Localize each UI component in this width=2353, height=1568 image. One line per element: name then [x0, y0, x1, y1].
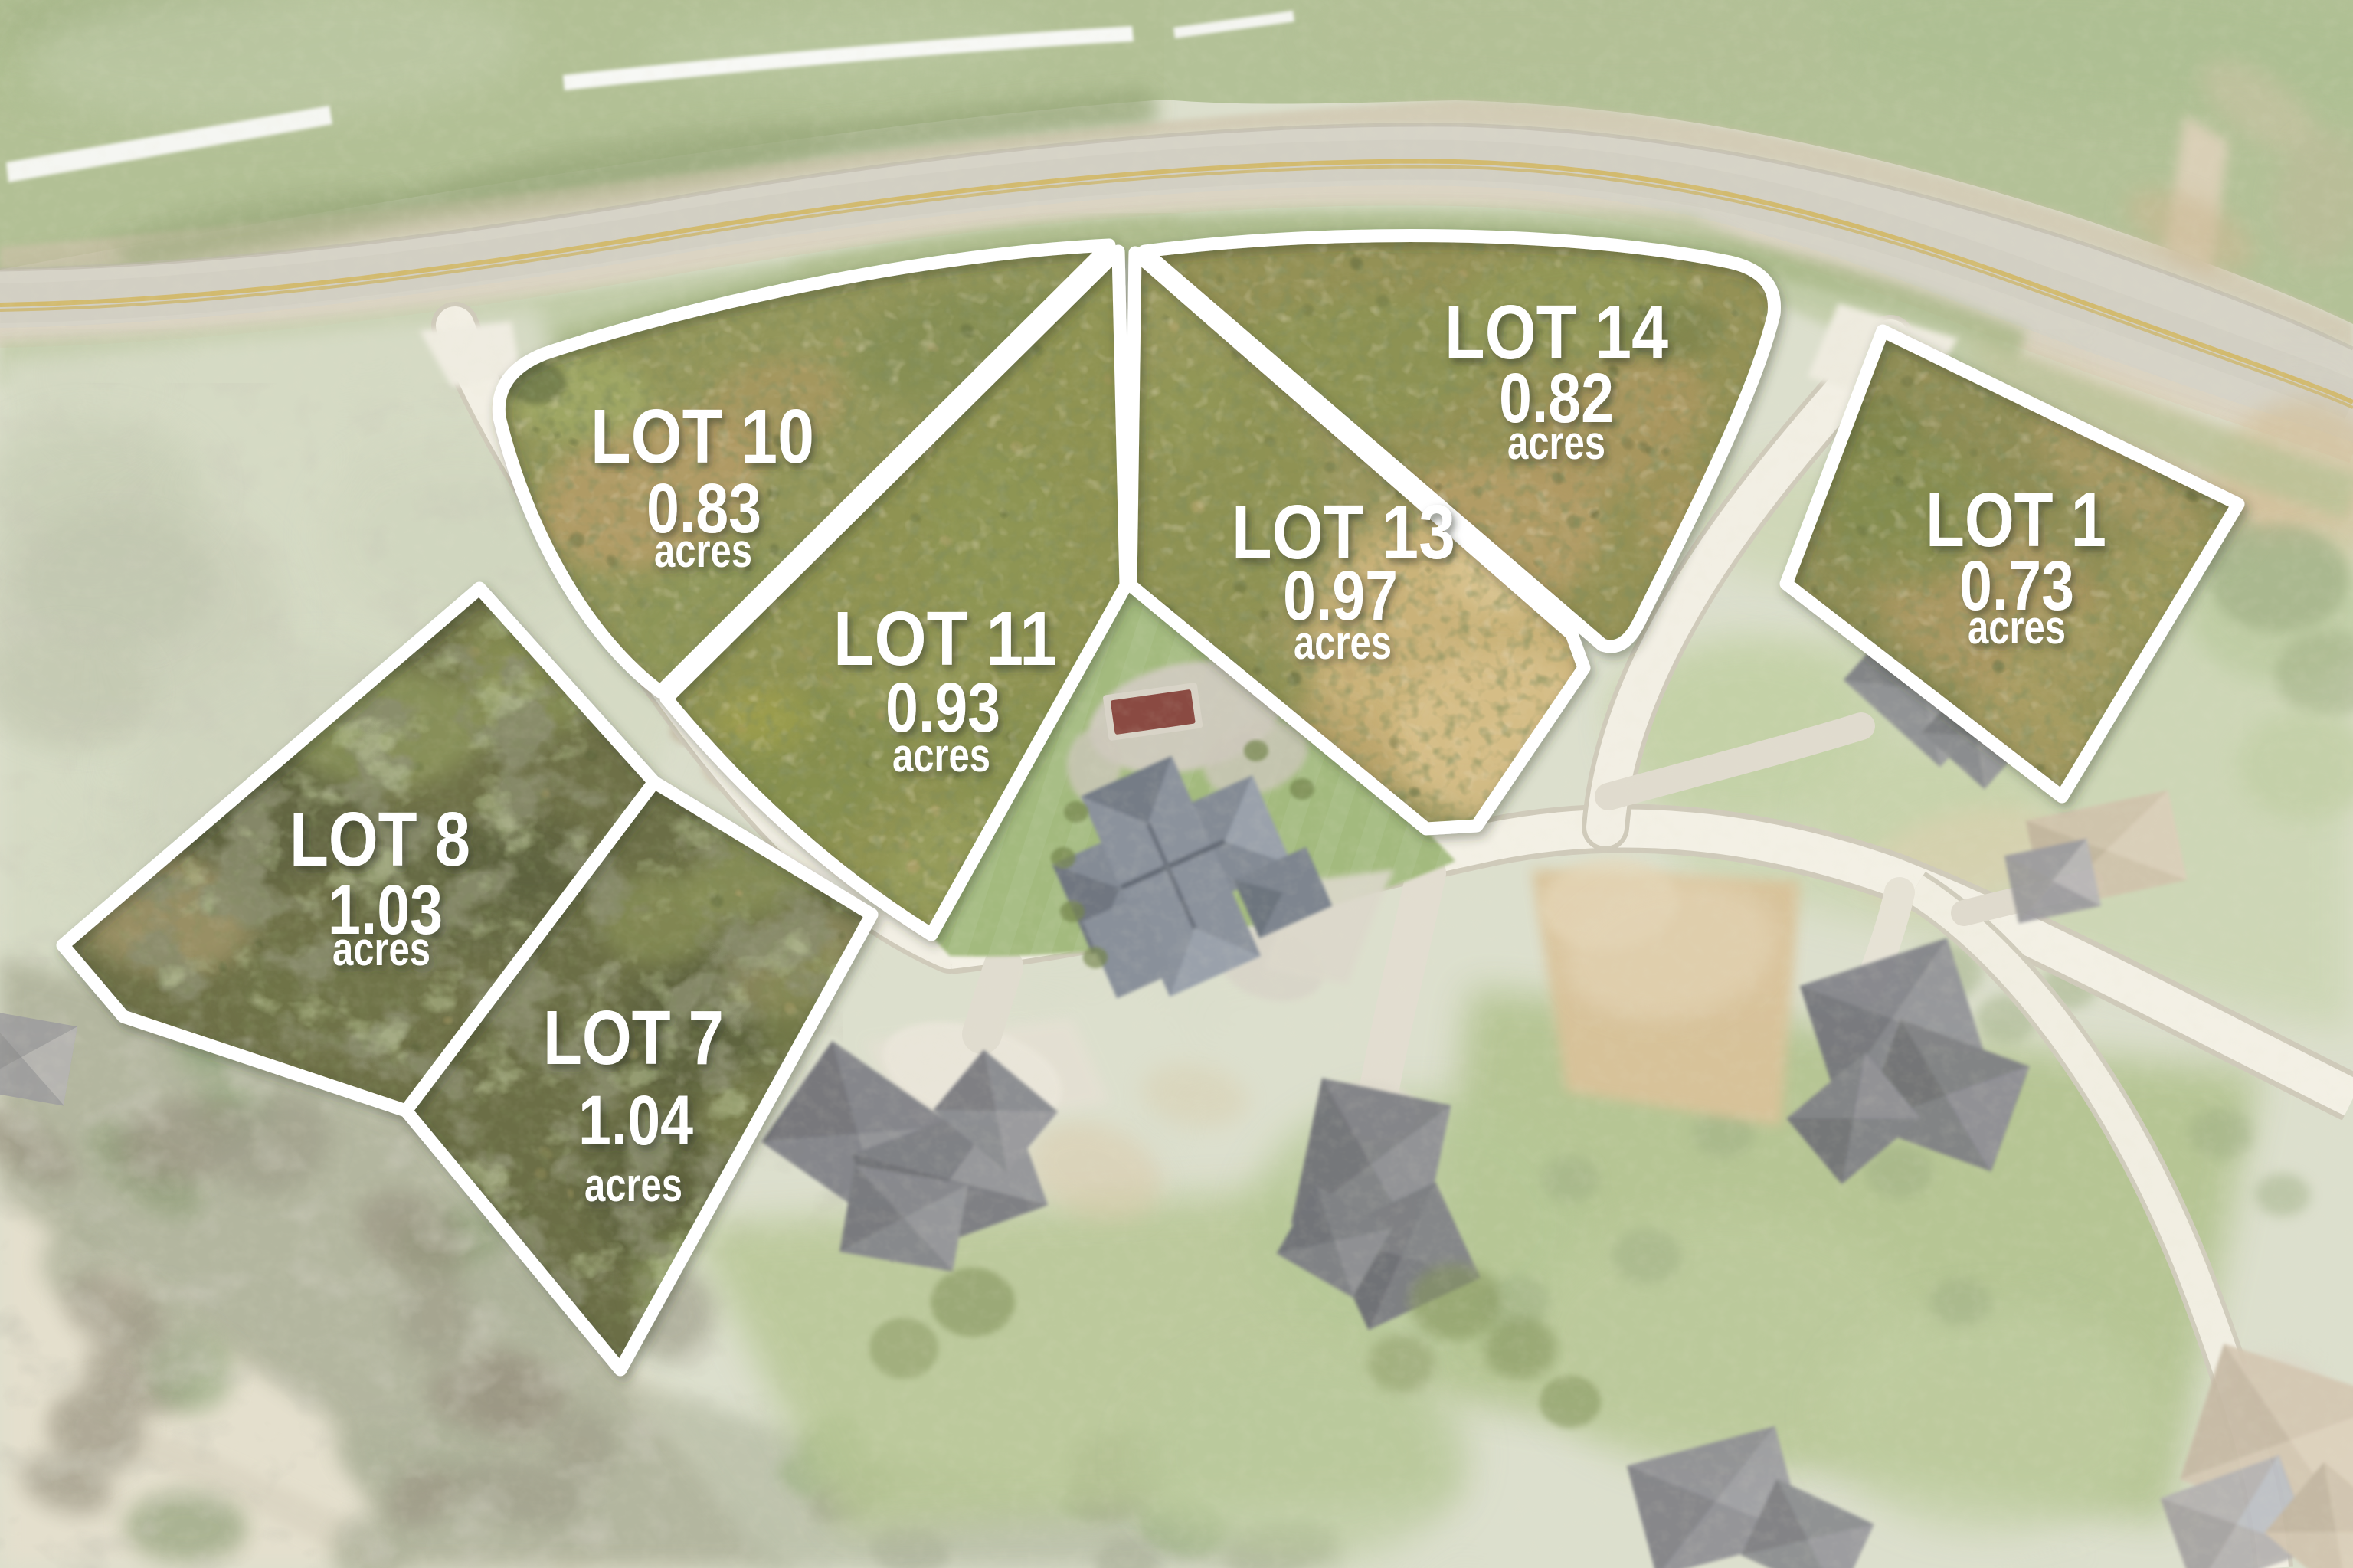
svg-text:acres: acres — [584, 1159, 682, 1212]
svg-text:acres: acres — [1294, 617, 1392, 669]
svg-text:acres: acres — [332, 923, 430, 976]
svg-text:1.04: 1.04 — [578, 1082, 693, 1160]
svg-text:LOT 8: LOT 8 — [290, 797, 470, 882]
svg-text:acres: acres — [1507, 417, 1605, 470]
svg-text:acres: acres — [892, 729, 990, 782]
svg-text:LOT 10: LOT 10 — [591, 394, 814, 480]
svg-text:LOT 7: LOT 7 — [543, 995, 724, 1081]
svg-text:acres: acres — [1968, 601, 2066, 654]
svg-text:acres: acres — [654, 525, 752, 578]
